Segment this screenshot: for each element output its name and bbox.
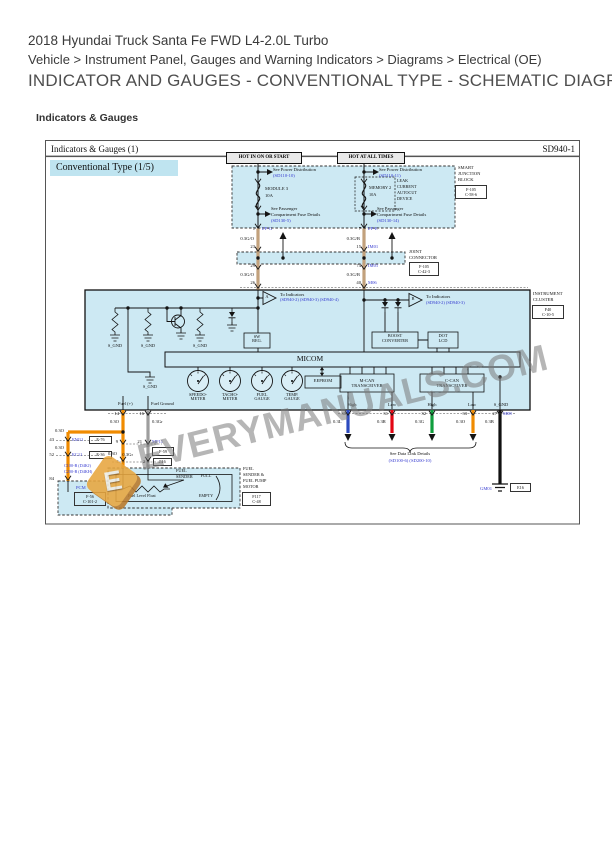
pin-label: 33 [457,411,467,416]
connector-label: EC11 [72,452,82,457]
connector-label: I/P-E [368,226,378,231]
cluster-pin-label: Fuel Ground [151,401,174,406]
ccan-line: TRANSCEIVER [420,383,484,388]
dot-lcd-label: DOT LCD [428,334,458,344]
connector-label: I/P-G [262,226,272,231]
wire-color-label: 0.3O [99,419,119,424]
pin-label: 40 [341,280,361,285]
gauge-label: TACHO- METER [214,393,246,403]
sgnd-label: S_GND [100,344,130,349]
hot-at-all-times-tag: HOT AT ALL TIMES [337,152,405,164]
page-title: INDICATOR AND GAUGES - CONVENTIONAL TYPE… [28,71,612,91]
wire-color-label: 0.3G/O [226,272,254,277]
ground-label: GM01 [470,486,492,491]
connector-code: E-76 [91,437,110,443]
ref-label: See Data Link Details [350,451,470,456]
sheet-code: SD940-1 [495,144,575,154]
pin-label: 23 [235,244,255,249]
pin-label: 43 [42,437,54,442]
pin-label: 26 [235,280,255,285]
connector-code: C-10-5 [534,312,562,318]
pin-label: 1 [235,226,255,231]
boost-label: BOOST CONVERTER [372,334,418,344]
wire-color-label: 0.3G [415,419,424,424]
cluster-pin-label: Low [462,402,482,407]
buffer-letter: A [262,295,272,300]
sgnd-label: S_GND [135,385,165,390]
connector-label: IM01 [368,244,378,249]
mcan-line: TRANSCEIVER [340,383,394,388]
schematic-canvas [0,0,612,866]
ccan-label: C-CAN TRANSCEIVER [420,378,484,388]
cluster-pin-label: Fuel (+) [118,401,133,406]
gauge-line: METER [182,397,214,402]
fuel-sender-label: SENDER [176,475,193,480]
pin-label: 7 [341,226,361,231]
connector-code-box: F40 C-10-5 [532,305,564,319]
ref-label: See Power Distribution [273,167,316,172]
ref-label: Compartment Fuse Details [271,212,320,217]
pin-label: 15 [341,244,361,249]
gauge-label: FUEL GAUGE [246,393,278,403]
connector-code: C-58-6 [457,192,485,198]
pin-label: 52 [42,452,54,457]
connector-code: E16 [512,485,529,491]
connector-code-box: F117 C-48 [242,492,271,506]
pin-label: 29 [235,263,255,268]
pin-label: 27 [487,411,497,416]
ref-label: See Passenger [377,206,403,211]
dot-lcd-line: LCD [428,339,458,344]
empty-label: EMPTY [196,494,216,499]
leak-label: CURRENT [397,185,417,190]
gauge-line: GAUGE [246,397,278,402]
watermark-logo: E [79,447,146,514]
wire-color-label: 0.3L [333,419,342,424]
eeprom-label: EEPROM [305,378,341,383]
component-label: SENDER & [243,473,264,478]
sgnd-label: S_GND [185,344,215,349]
pin-label: 30 [336,411,346,416]
connector-label: M08 [503,411,512,416]
speedometer-gauge-icon [188,371,209,392]
wire-color-label: 0.3Gr [152,419,163,424]
ref-label: Compartment Fuse Details [377,212,426,217]
wire-color-label: 0.3G/B [332,236,360,241]
wire-color-label: 0.3O [40,445,64,450]
page: 2018 Hyundai Truck Santa Fe FWD L4-2.0L … [0,0,612,866]
logo-letter: E [79,447,146,514]
wire-color-label: 0.3G/B [332,272,360,277]
connector-code-box: F16 [153,458,172,467]
ref-code: (SD100-6) (SD200-10) [350,458,470,463]
wire-color-label: 0.3B [485,419,494,424]
pin-label: 14 [105,411,119,416]
wire-color-label: 0.3R [377,419,386,424]
ref-code: (SD940-2) (SD940-3) (SD940-4) [280,298,339,303]
sw-reg-label: SW REG. [244,335,270,345]
wire-color-label: 0.3O [456,419,465,424]
connector-code-box: F-59 [152,447,174,456]
leak-label: AUTOCUT [397,191,417,196]
component-label: JUNCTION [458,171,480,176]
full-label: FULL [198,474,214,479]
joint-connector-band [237,252,405,264]
connector-code: C-42-3 [411,269,437,275]
fuse-rating: 10A [265,193,273,198]
component-label: BLOCK [458,177,474,182]
ref-code: (SD130-5) [271,218,291,223]
fuse-name: MEMORY 2 [369,186,391,191]
connector-label: M06 [368,280,377,285]
pin-label: 31 [378,411,388,416]
ref-code: (SD110-10) [273,173,295,178]
wire-color-label: 0.3G/O [226,236,254,241]
pin-label: 84 [42,476,54,481]
component-label: FUEL [243,467,254,472]
pin-label: 21 [130,439,142,444]
ground-symbol [492,484,508,491]
gauge-label: SPEEDO- METER [182,393,214,403]
component-label: SMART [458,165,474,170]
component-label: FUEL PUMP [243,479,266,484]
connector-code: C-48 [244,499,269,505]
cluster-pin-label: High [342,402,362,407]
pin-label: 74 [341,263,361,268]
fuel-sender-label: FUEL [176,469,187,474]
sgnd-label: S_GND [133,344,163,349]
component-label: JOINT [409,249,422,254]
fuel-gauge-icon [252,371,273,392]
temp-gauge-icon [282,371,303,392]
sheet-title: Indicators & Gauges (1) [51,144,138,154]
pin-label: 32 [416,411,426,416]
ref-label: See Power Distribution [379,167,422,172]
leak-label: LEAK [397,179,408,184]
title-divider [46,156,580,158]
connector-code-box: E-76 [89,436,112,445]
hot-in-on-tag: HOT IN ON OR START [226,152,302,164]
wire-color-label: 0.3O [40,428,64,433]
gauge-label: TEMP. GAUGE [276,393,308,403]
buffer-letter: B [408,297,418,302]
ref-code: (SD940-2) (SD940-3) [426,301,465,306]
mcan-label: M-CAN TRANSCEIVER [340,378,394,388]
ref-label: See Passenger [271,206,297,211]
cluster-pin-label: Low [382,402,402,407]
ref-code: (SD130-14) [377,218,399,223]
micom-label: MICOM [270,355,350,363]
component-label: MOTOR [243,485,258,490]
component-label: INSTRUMENT [533,291,563,296]
gauge-line: METER [214,397,246,402]
component-label: CLUSTER [533,297,553,302]
connector-code-box: F-105 C-42-3 [409,262,439,276]
connector-code-box: E16 [510,483,531,492]
connector-code-box: F-105 C-58-6 [455,185,487,199]
tachometer-gauge-icon [220,371,241,392]
leak-label: DEVICE [397,197,412,202]
pin-label: 16 [130,411,144,416]
connector-label: MF11 [152,439,163,444]
boost-line: CONVERTER [372,339,418,344]
fuse-name: MODULE 3 [265,186,288,191]
fuse-rating: 10A [369,193,376,198]
cluster-pin-label: S_GND [488,402,514,407]
cluster-pin-label: High [422,402,442,407]
ref-label: To Indicators [426,294,450,299]
connector-code: F-59 [154,449,172,455]
connector-label: EM11 [72,437,83,442]
connector-code: F16 [155,459,170,465]
sw-reg-line: REG. [244,339,270,344]
connector-label: IM01 [368,263,378,268]
gauge-line: GAUGE [276,397,308,402]
ref-label: To Indicators [280,292,304,297]
vehicle-title: 2018 Hyundai Truck Santa Fe FWD L4-2.0L … [28,33,328,48]
breadcrumb[interactable]: Vehicle > Instrument Panel, Gauges and W… [28,52,542,67]
variant-label: Conventional Type (1/5) [50,160,178,176]
ref-code: (SD110-11) [379,173,401,178]
section-label: Indicators & Gauges [36,112,138,124]
component-label: CONNECTOR [409,255,437,260]
